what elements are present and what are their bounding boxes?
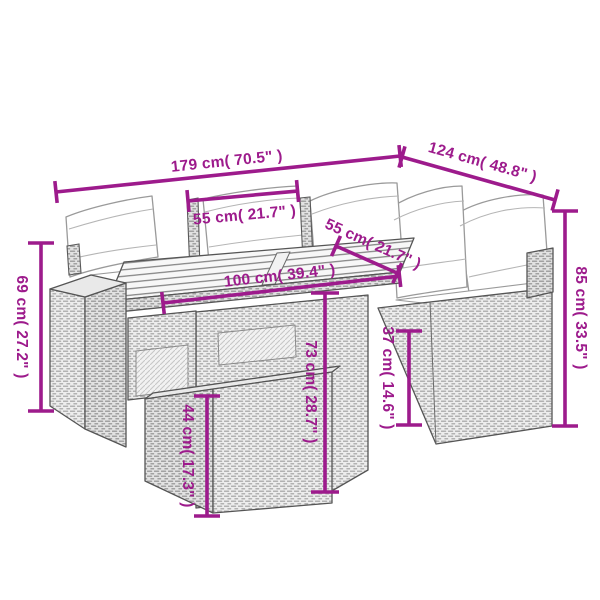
left-armrest-inner (85, 283, 126, 447)
dim-label-table-height: 73 cm( 28.7" ) (302, 340, 319, 443)
dim-label-ottoman-height: 44 cm( 17.3" ) (179, 404, 196, 507)
dim-label-back-height: 85 cm( 33.5" ) (572, 266, 589, 369)
product-dimension-diagram: 179 cm( 70.5" ) 124 cm( 48.8" ) 55 cm( 2… (0, 0, 600, 600)
dim-back-height: 85 cm( 33.5" ) (552, 211, 589, 426)
sofa-set-illustration (50, 183, 553, 513)
dim-label-seat-height: 37 cm( 14.6" ) (379, 326, 396, 429)
dim-label-armrest-height: 69 cm( 27.2" ) (13, 275, 30, 378)
furniture-dimension-diagram: 179 cm( 70.5" ) 124 cm( 48.8" ) 55 cm( 2… (0, 0, 600, 600)
ottoman-left-face (145, 389, 213, 513)
right-armrest (527, 248, 553, 298)
dim-armrest-height: 69 cm( 27.2" ) (13, 243, 54, 411)
right-sofa-base (378, 288, 552, 444)
left-armrest-front (50, 289, 85, 429)
left-base-inset (136, 345, 188, 396)
